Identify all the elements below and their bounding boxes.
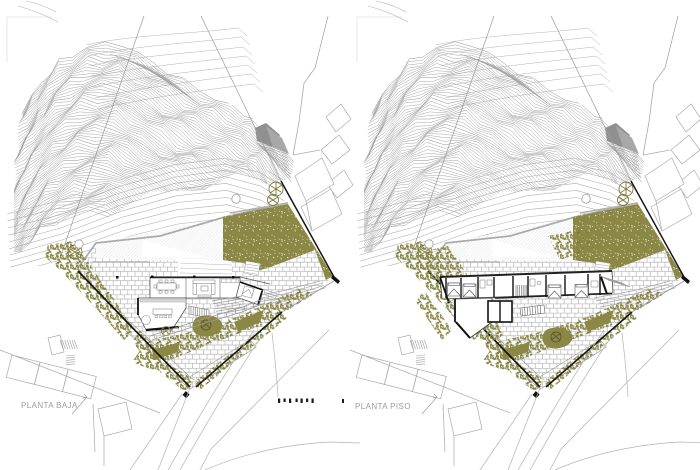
svg-text:PLANTA BAJA: PLANTA BAJA [21, 401, 78, 410]
svg-text:PLANTA PISO: PLANTA PISO [355, 402, 411, 411]
